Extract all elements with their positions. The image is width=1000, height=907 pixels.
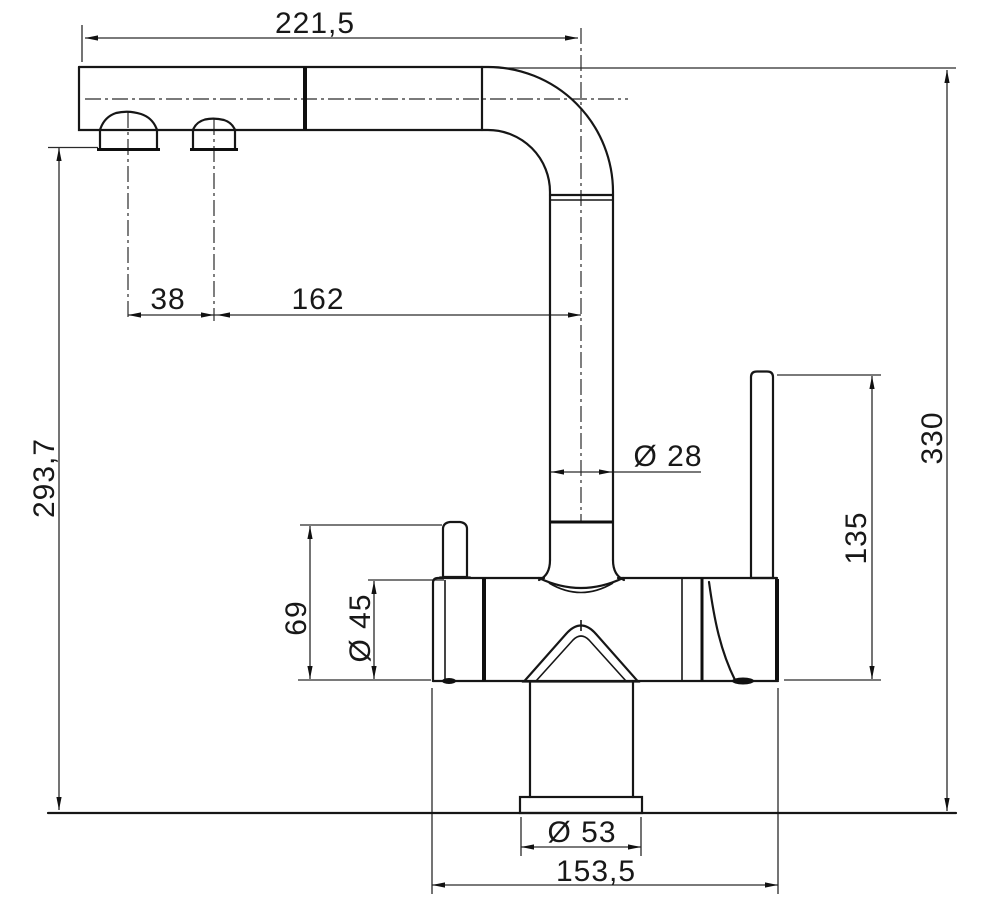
saddle-outer bbox=[539, 578, 623, 588]
base-cone bbox=[524, 626, 638, 682]
dim-label-spout-reach: 221,5 bbox=[275, 7, 355, 40]
filter-knob bbox=[443, 522, 467, 577]
dim-label-base-diameter: Ø 53 bbox=[547, 816, 616, 849]
drawing-canvas: 221,5 38 162 293,7 Ø 28 330 135 69 Ø 45 … bbox=[0, 0, 1000, 907]
centerlines bbox=[85, 28, 628, 521]
dim-label-aerator-to-riser: 162 bbox=[291, 283, 344, 316]
body-left-top bbox=[433, 578, 544, 681]
dimension-labels: 221,5 38 162 293,7 Ø 28 330 135 69 Ø 45 … bbox=[28, 7, 949, 888]
body-bottom-detail-right bbox=[732, 678, 754, 685]
base-cone-inner bbox=[536, 636, 626, 681]
dim-label-aerator-spacing: 38 bbox=[150, 283, 185, 316]
dim-label-outlet-height: 293,7 bbox=[28, 438, 61, 518]
dim-label-total-height: 330 bbox=[916, 411, 949, 464]
dim-label-body-height: 69 bbox=[280, 600, 313, 635]
dimension-lines bbox=[48, 25, 956, 894]
body-bottom-detail-left bbox=[442, 678, 456, 684]
dim-label-riser-diameter: Ø 28 bbox=[633, 440, 702, 473]
handle-pivot-seam bbox=[709, 582, 735, 680]
dim-label-body-diameter: Ø 45 bbox=[344, 593, 377, 662]
faucet-technical-drawing: 221,5 38 162 293,7 Ø 28 330 135 69 Ø 45 … bbox=[0, 0, 1000, 907]
dim-label-lever-height: 135 bbox=[840, 511, 873, 564]
base-flange bbox=[520, 797, 642, 813]
handle-lever bbox=[751, 372, 773, 579]
dimension-arrows bbox=[56, 35, 949, 887]
dim-label-body-length: 153,5 bbox=[556, 855, 636, 888]
